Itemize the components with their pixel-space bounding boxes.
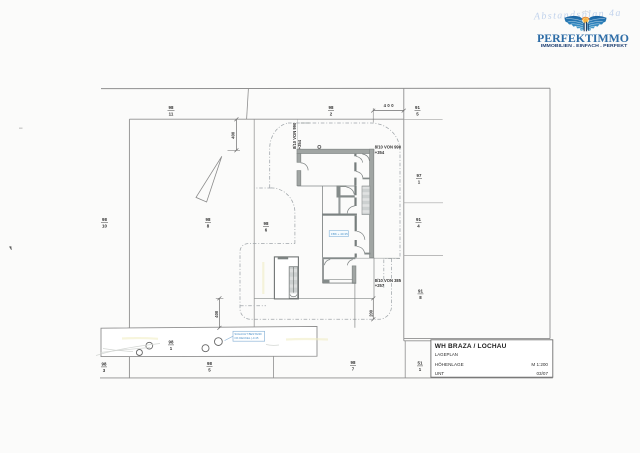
- svg-text:98: 98: [329, 105, 334, 110]
- svg-text:91: 91: [418, 289, 423, 294]
- svg-text:98: 98: [351, 360, 356, 365]
- svg-text:98: 98: [102, 362, 107, 367]
- svg-text:FBK + 40.35: FBK + 40.35: [331, 232, 348, 236]
- svg-text:98: 98: [169, 105, 174, 110]
- svg-text:11: 11: [169, 112, 174, 117]
- svg-text:03/07: 03/07: [537, 371, 549, 376]
- svg-text:97: 97: [417, 173, 422, 178]
- svg-text:+354: +354: [297, 139, 302, 149]
- svg-text:WH BRAZA / LOCHAU: WH BRAZA / LOCHAU: [435, 343, 507, 350]
- svg-text:400: 400: [384, 103, 395, 108]
- svg-text:98: 98: [207, 361, 212, 366]
- svg-text:+354: +354: [375, 150, 385, 155]
- svg-text:98: 98: [102, 217, 107, 222]
- svg-text:M 1:200: M 1:200: [531, 362, 548, 367]
- svg-text:98: 98: [169, 340, 174, 345]
- svg-text:98: 98: [206, 217, 211, 222]
- svg-text:91: 91: [415, 105, 420, 110]
- svg-text:91: 91: [416, 217, 421, 222]
- svg-text:OK DECKEL (-0.45: OK DECKEL (-0.45: [234, 336, 258, 340]
- svg-text:IMMOBILIEN . EINFACH . PERFEKT: IMMOBILIEN . EINFACH . PERFEKT: [541, 43, 628, 48]
- svg-text:LAGEPLAN: LAGEPLAN: [435, 352, 458, 357]
- svg-text:400: 400: [214, 310, 219, 318]
- svg-text:HÖHENLAGE: HÖHENLAGE: [435, 361, 464, 367]
- svg-text:+257: +257: [375, 283, 385, 288]
- svg-text:98: 98: [264, 221, 269, 226]
- svg-text:10: 10: [102, 224, 107, 229]
- svg-text:200: 200: [369, 309, 374, 317]
- svg-text:UNT: UNT: [435, 371, 445, 376]
- svg-text:51: 51: [418, 361, 423, 366]
- svg-text:400: 400: [231, 131, 236, 139]
